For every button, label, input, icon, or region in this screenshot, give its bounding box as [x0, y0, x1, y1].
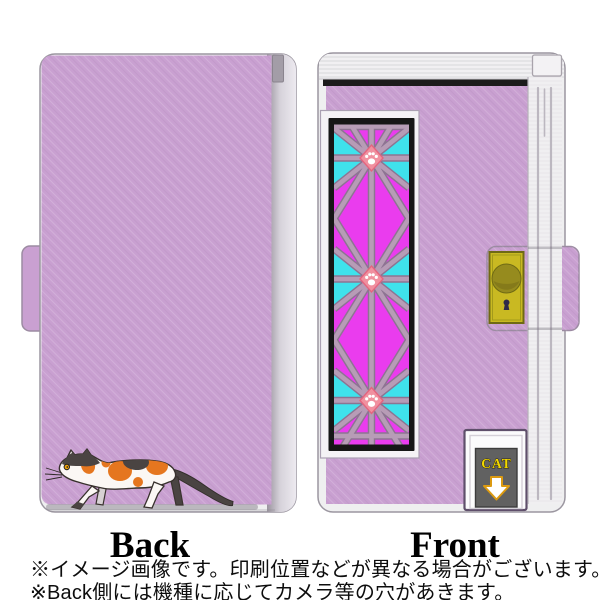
front-case-view: CAT [318, 53, 579, 512]
camera-notch [273, 55, 284, 82]
disclaimer-notes: ※イメージ画像です。印刷位置などが異なる場合がございます。 ※Back側には機種… [30, 559, 596, 600]
cat-flap-label: CAT [481, 456, 512, 471]
cat-flap: CAT [465, 430, 527, 510]
phone-case-artwork: CAT [0, 0, 600, 522]
back-case-view [22, 54, 296, 512]
product-image: CAT Back Front [0, 0, 600, 600]
front-spine-band [528, 77, 562, 504]
disclaimer-line-2: ※Back側には機種に応じてカメラ等の穴があきます。 [30, 582, 596, 600]
front-corner-fold [533, 55, 562, 76]
asanoha-pattern [334, 97, 409, 461]
front-black-strip [323, 80, 533, 87]
stained-glass-panel [321, 97, 420, 461]
disclaimer-line-1: ※イメージ画像です。印刷位置などが異なる場合がございます。 [30, 559, 596, 582]
